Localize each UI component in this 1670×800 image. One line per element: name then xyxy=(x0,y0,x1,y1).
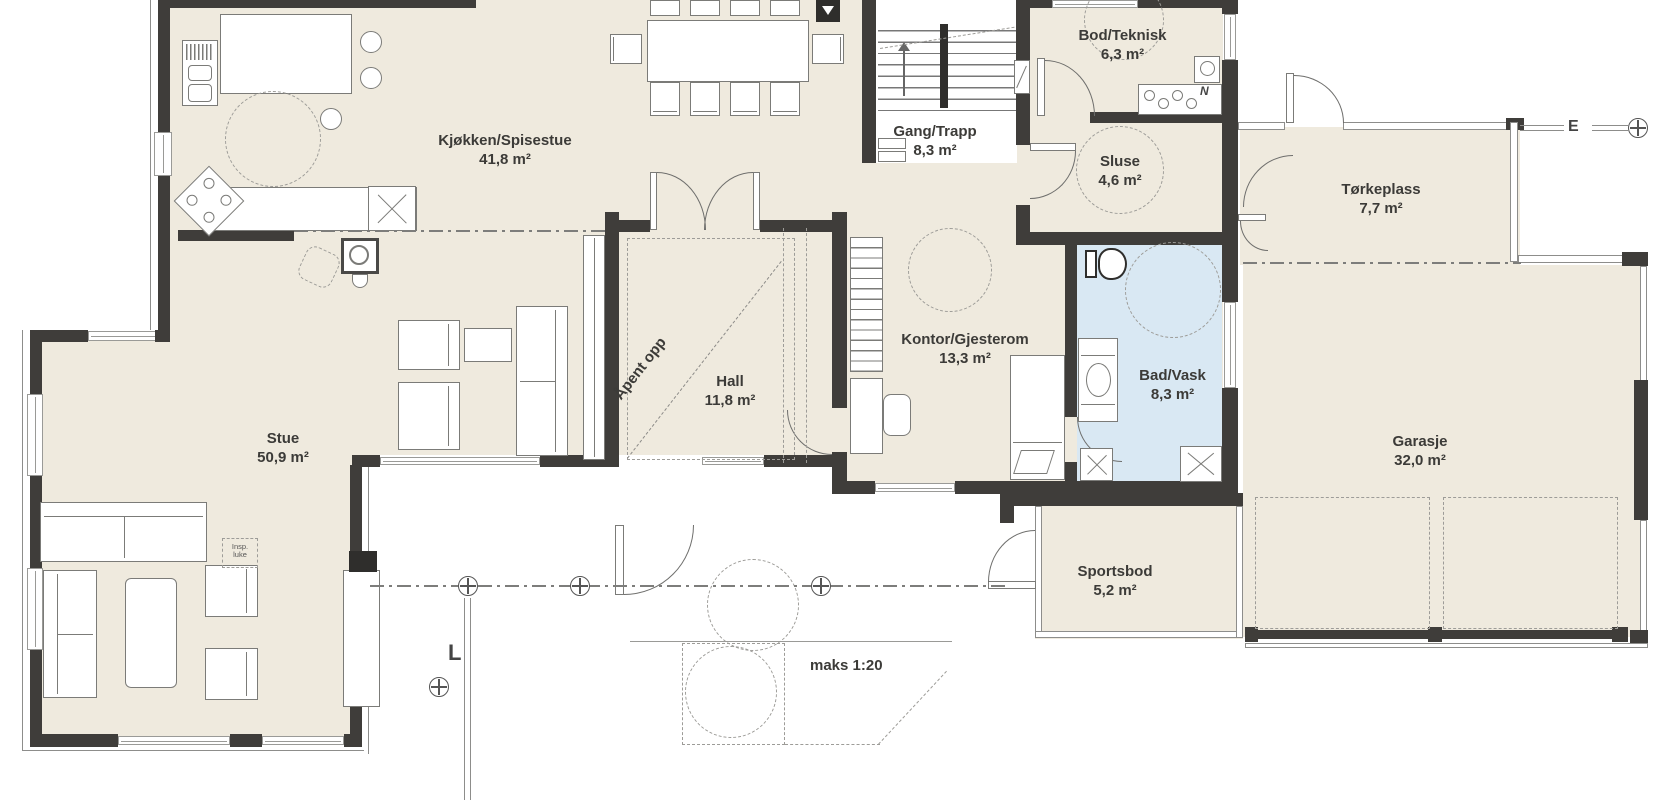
open-above-edge xyxy=(783,228,784,463)
floor-plan: N Åpent opp xyxy=(0,0,1670,800)
grid-letter-east: E xyxy=(1568,118,1579,136)
window xyxy=(154,132,172,176)
room-name: Gang/Trapp xyxy=(855,122,1015,141)
dining-chair xyxy=(770,0,800,16)
sliding-door-window xyxy=(88,331,162,341)
burner xyxy=(201,176,217,192)
inspection-hatch-label: Insp. luke xyxy=(224,543,256,559)
coffee-table xyxy=(125,578,177,688)
wall xyxy=(1007,493,1243,506)
room-label-stue: Stue 50,9 m² xyxy=(228,429,338,467)
wall xyxy=(158,176,170,335)
cooktop-unit xyxy=(368,186,416,231)
room-label-garasje: Garasje 32,0 m² xyxy=(1345,432,1495,470)
grid-line xyxy=(1592,130,1628,131)
shower xyxy=(1180,446,1222,482)
grid-line xyxy=(470,598,471,800)
grid-line xyxy=(1592,125,1628,126)
terrace-line xyxy=(630,641,952,642)
grid-letter-south: L xyxy=(448,640,461,666)
wall xyxy=(619,220,650,232)
grid-line xyxy=(1520,125,1564,126)
kitchen-island xyxy=(220,14,352,94)
door-leaf xyxy=(1030,143,1076,151)
wall xyxy=(1000,493,1014,523)
dining-chair xyxy=(690,0,720,16)
wall xyxy=(832,212,847,408)
wall xyxy=(158,0,476,8)
wardrobe xyxy=(850,237,883,372)
wall xyxy=(1222,0,1238,14)
turning-circle xyxy=(1125,242,1221,338)
room-label-sluse: Sluse 4,6 m² xyxy=(1045,152,1195,190)
sink-basin xyxy=(188,65,212,81)
wall xyxy=(605,212,619,467)
dining-chair xyxy=(690,82,720,116)
garage-post xyxy=(1612,627,1628,642)
armchair xyxy=(398,382,460,450)
room-name: Bod/Teknisk xyxy=(1040,26,1205,45)
desk-chair xyxy=(883,394,911,436)
room-area: 13,3 m² xyxy=(880,349,1050,368)
washer xyxy=(1080,448,1113,481)
room-label-kjokken: Kjøkken/Spisestue 41,8 m² xyxy=(420,131,590,169)
turning-circle xyxy=(225,91,321,187)
garage-wall xyxy=(1518,255,1630,263)
wall xyxy=(1065,462,1077,490)
wall xyxy=(1634,380,1648,520)
open-above-edge xyxy=(806,228,807,463)
room-area: 7,7 m² xyxy=(1296,199,1466,218)
dining-chair xyxy=(650,82,680,116)
wall xyxy=(155,330,170,342)
appliance-ring xyxy=(1144,90,1155,101)
window xyxy=(875,483,955,492)
room-name: Sportsbod xyxy=(1040,562,1190,581)
electrical-panel xyxy=(1014,60,1030,94)
grid-line xyxy=(464,598,465,800)
room-area: 5,2 m² xyxy=(1040,581,1190,600)
room-name: Tørkeplass xyxy=(1296,180,1466,199)
grid-marker xyxy=(458,576,478,596)
sink-basin xyxy=(188,84,212,102)
armchair xyxy=(398,320,460,370)
bar-stool xyxy=(320,108,342,130)
kitchen-sink xyxy=(182,40,218,106)
room-name: Stue xyxy=(228,429,338,448)
dining-chair xyxy=(812,34,844,64)
bed xyxy=(1010,355,1065,480)
ramp-slope-label: maks 1:20 xyxy=(810,656,883,675)
garage-door-line xyxy=(1245,643,1648,648)
wall xyxy=(178,230,294,241)
gate-swing xyxy=(1294,75,1344,123)
room-name: Garasje xyxy=(1345,432,1495,451)
window xyxy=(27,568,43,650)
roof-overhang-line xyxy=(1243,262,1521,264)
wall xyxy=(760,220,832,232)
wall xyxy=(352,455,380,467)
section-marker xyxy=(816,0,840,22)
bar-stool xyxy=(360,31,382,53)
foundation-line xyxy=(22,330,23,750)
appliance-ring xyxy=(1158,98,1169,109)
toilet xyxy=(1085,248,1129,282)
grid-marker xyxy=(570,576,590,596)
room-label-gang: Gang/Trapp 8,3 m² xyxy=(855,122,1015,160)
burner xyxy=(201,209,217,225)
desk xyxy=(850,378,883,454)
tv xyxy=(349,551,377,572)
open-plan-line xyxy=(294,230,605,232)
turning-circle xyxy=(707,559,799,651)
room-name: Kontor/Gjesterom xyxy=(880,330,1050,349)
window xyxy=(380,457,540,465)
parking-space xyxy=(1255,497,1430,629)
room-name: Sluse xyxy=(1045,152,1195,171)
room-area: 8,3 m² xyxy=(855,141,1015,160)
insp-line2: luke xyxy=(224,551,256,559)
turning-circle xyxy=(908,228,992,312)
garage-post xyxy=(1428,627,1442,642)
dining-table xyxy=(647,20,809,82)
sofa xyxy=(40,502,207,562)
room-area: 50,9 m² xyxy=(228,448,338,467)
stair-arrow xyxy=(903,50,905,96)
grid-marker xyxy=(1628,118,1648,138)
wall xyxy=(30,330,42,394)
window xyxy=(1224,14,1236,60)
room-area: 41,8 m² xyxy=(420,150,590,169)
garage-post xyxy=(1245,627,1258,642)
dining-chair xyxy=(610,34,642,64)
wall xyxy=(30,734,118,747)
wall xyxy=(1030,232,1222,245)
pillow xyxy=(1013,450,1055,474)
cold-wall xyxy=(1236,506,1243,638)
grid-line xyxy=(1520,130,1564,131)
door-leaf xyxy=(1037,58,1045,116)
window xyxy=(27,394,43,476)
tv-bench xyxy=(343,570,380,707)
window xyxy=(118,736,230,745)
room-area: 6,3 m² xyxy=(1040,45,1205,64)
room-area: 4,6 m² xyxy=(1045,171,1195,190)
wall xyxy=(1065,245,1077,417)
garage-wall xyxy=(1640,266,1647,382)
cold-wall xyxy=(1035,631,1243,638)
parking-space xyxy=(1443,497,1618,629)
wall xyxy=(832,452,847,494)
dining-chair xyxy=(770,82,800,116)
bar-stool xyxy=(360,67,382,89)
ramp-diagonal xyxy=(785,744,880,745)
foundation-line xyxy=(22,750,364,751)
room-name: Hall xyxy=(660,372,800,391)
fireplace xyxy=(341,238,379,274)
grid-marker xyxy=(429,677,449,697)
fence xyxy=(1510,122,1518,262)
room-name: Bad/Vask xyxy=(1100,366,1245,385)
garage-wall xyxy=(1640,520,1647,632)
dining-chair xyxy=(730,82,760,116)
fence xyxy=(1238,122,1285,130)
appliance-ring xyxy=(1172,90,1183,101)
wall xyxy=(30,650,42,747)
room-label-torkeplass: Tørkeplass 7,7 m² xyxy=(1296,180,1466,218)
room-label-bod: Bod/Teknisk 6,3 m² xyxy=(1040,26,1205,64)
room-label-kontor: Kontor/Gjesterom 13,3 m² xyxy=(880,330,1050,368)
appliance-ring xyxy=(1186,98,1197,109)
burner xyxy=(184,193,200,209)
sofa xyxy=(516,306,568,456)
drainer-lines xyxy=(186,44,214,60)
fence xyxy=(1343,122,1513,130)
wall xyxy=(230,734,262,747)
foundation-line xyxy=(150,0,151,330)
window xyxy=(262,736,344,745)
room-area: 8,3 m² xyxy=(1100,385,1245,404)
gate-leaf xyxy=(1286,73,1294,123)
wall xyxy=(1016,205,1030,245)
utility-counter xyxy=(1138,84,1222,115)
sofa xyxy=(43,570,97,698)
room-area: 32,0 m² xyxy=(1345,451,1495,470)
turning-circle xyxy=(685,646,777,738)
door-swing xyxy=(988,530,1035,582)
side-table xyxy=(464,328,512,362)
room-area: 11,8 m² xyxy=(660,391,800,410)
burner xyxy=(218,193,234,209)
fireplace-flue xyxy=(349,245,369,265)
dining-chair xyxy=(730,0,760,16)
room-name: Kjøkken/Spisestue xyxy=(420,131,590,150)
bookshelf xyxy=(583,235,605,460)
room-label-bad: Bad/Vask 8,3 m² xyxy=(1100,366,1245,404)
door-leaf xyxy=(753,172,760,230)
wall xyxy=(1030,0,1052,8)
grid-marker xyxy=(811,576,831,596)
armchair xyxy=(205,565,258,617)
ramp-diagonal xyxy=(878,671,947,745)
garage-corner xyxy=(1622,252,1648,266)
door-leaf xyxy=(650,172,657,230)
armchair xyxy=(205,648,258,700)
vent-symbol: N xyxy=(1200,84,1209,98)
door-leaf xyxy=(1238,214,1266,221)
wall xyxy=(1222,60,1238,302)
room-label-sportsbod: Sportsbod 5,2 m² xyxy=(1040,562,1190,600)
room-label-hall: Hall 11,8 m² xyxy=(660,372,800,410)
wall xyxy=(158,0,170,132)
dining-chair xyxy=(650,0,680,16)
